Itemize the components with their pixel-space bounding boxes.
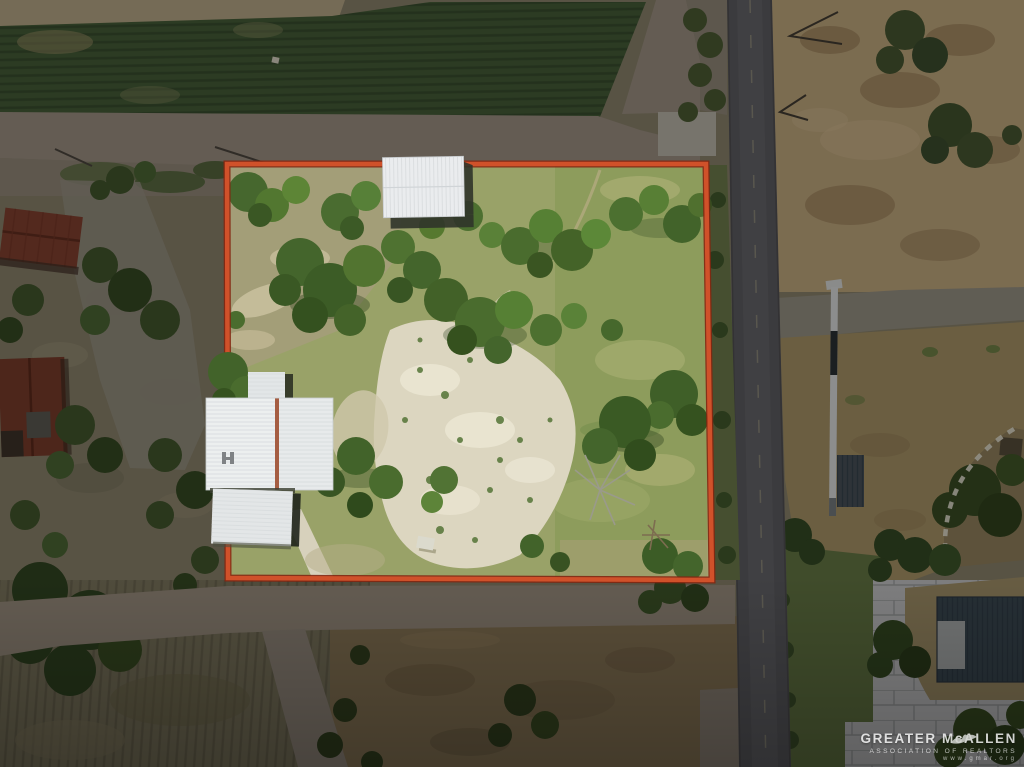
aerial-photo: GREATER McALLEN ASSOCIATION OF REALTORS … <box>0 0 1024 767</box>
storage-shed-roof <box>382 156 473 229</box>
roof-ridge-rust <box>275 398 279 490</box>
bottom-vignette <box>0 575 1024 767</box>
aerial-scene <box>0 0 1024 767</box>
